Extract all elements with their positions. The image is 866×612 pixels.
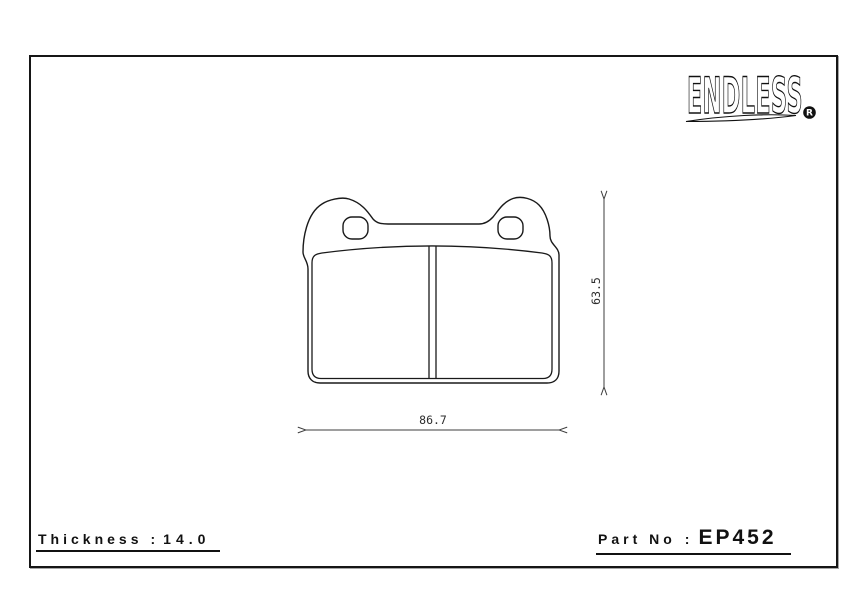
thickness-value: 14.0 xyxy=(163,531,210,547)
spec-sheet-page: ENDLESS R 86.7 xyxy=(0,0,866,612)
thickness-field: Thickness : 14.0 xyxy=(36,531,220,552)
height-dimension-label: 63.5 xyxy=(589,277,603,305)
friction-material-outline xyxy=(312,246,552,379)
brake-pad-drawing: 86.7 63.5 xyxy=(0,0,866,612)
height-dimension: 63.5 xyxy=(589,199,604,387)
thickness-label: Thickness xyxy=(38,531,142,547)
width-dimension-label: 86.7 xyxy=(419,413,447,427)
part-no-field: Part No : EP452 xyxy=(596,526,791,555)
part-no-separator: : xyxy=(685,531,690,547)
mounting-hole-right xyxy=(498,217,523,239)
mounting-hole-left xyxy=(343,217,368,239)
part-no-label: Part No xyxy=(598,531,676,547)
part-no-value: EP452 xyxy=(698,526,776,550)
thickness-separator: : xyxy=(150,531,155,547)
width-dimension: 86.7 xyxy=(306,413,559,430)
